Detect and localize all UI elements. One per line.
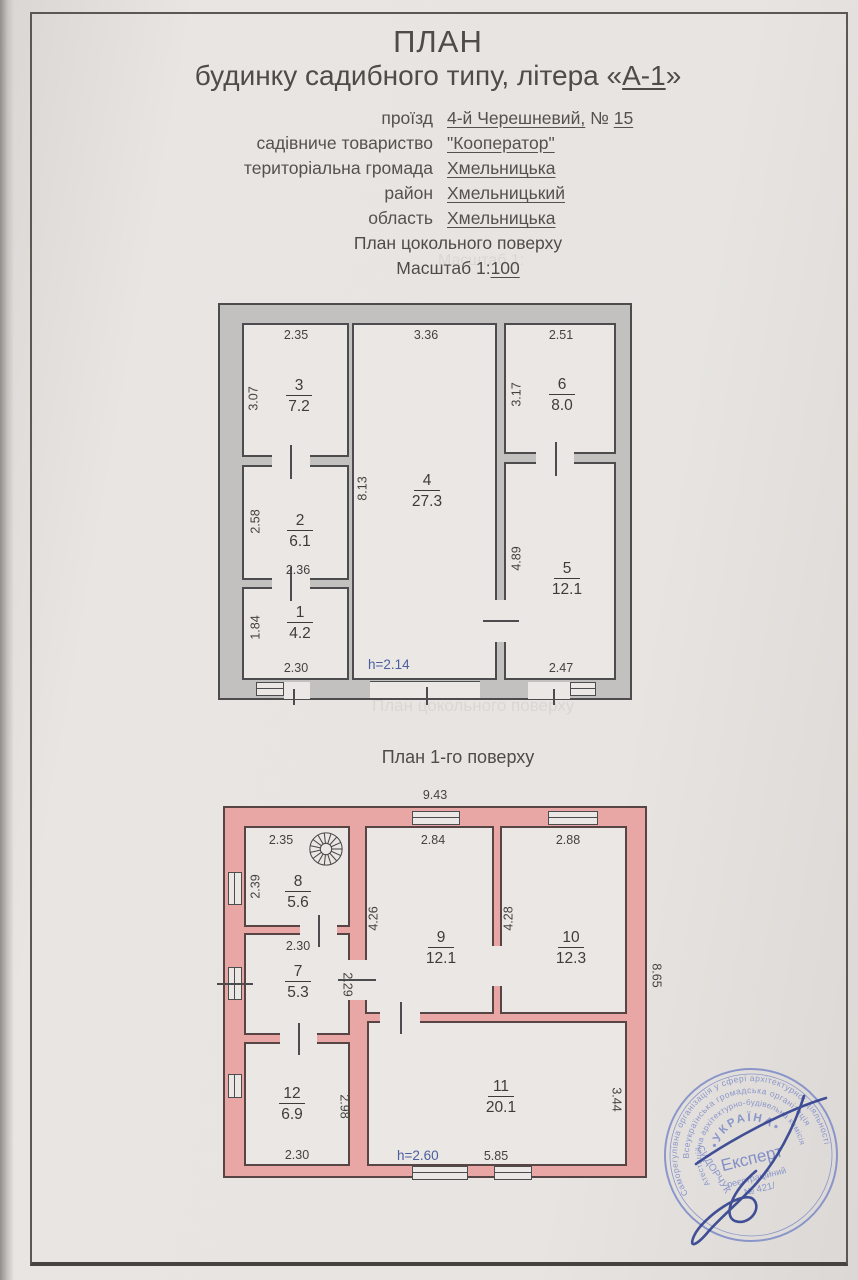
subtitle-suffix: »	[666, 60, 682, 91]
basement-section-title: План цокольного поверху	[298, 233, 618, 254]
room-label-12: 12 6.9	[262, 1085, 322, 1123]
ceiling-height-note: h=2.14	[368, 657, 410, 672]
address-fields: проїзд 4-й Черешневий, № 15 садівниче то…	[38, 106, 838, 231]
field-value: Хмельницька	[447, 208, 556, 229]
room-label-10: 10 12.3	[541, 929, 601, 967]
door-opening	[492, 946, 502, 986]
window	[256, 682, 284, 696]
dimension-tick	[293, 689, 295, 705]
field-label: область	[38, 208, 433, 229]
field-value: Хмельницький	[447, 183, 565, 204]
room-label-6: 6 8.0	[532, 376, 592, 414]
show-through-ghost: Масштаб 1:	[438, 252, 524, 270]
room-label-5: 5 12.1	[537, 560, 597, 598]
window	[228, 1074, 242, 1098]
dim-room4-width: 3.36	[404, 328, 448, 343]
dim-room8-width: 2.35	[259, 833, 303, 848]
dim-overall-width: 9.43	[413, 788, 457, 803]
photographed-document: { "header": { "title_line1": "ПЛАН", "ti…	[0, 0, 858, 1280]
field-label: проїзд	[38, 108, 433, 129]
dim-room2-height: 2.58	[249, 500, 264, 544]
field-row-hromada: територіальна громада Хмельницька	[38, 156, 838, 181]
field-label: район	[38, 183, 433, 204]
dim-room11-height: 3.44	[609, 1078, 624, 1122]
first-floor-section-title: План 1-го поверху	[298, 747, 618, 768]
door-tick	[555, 442, 557, 476]
first-floor-plan: 2.35 2.39 2.30 2.29 2.30 2.98 2.84 4.26 …	[223, 806, 647, 1178]
field-label: садівниче товариство	[38, 133, 433, 154]
window	[412, 811, 460, 825]
field-value: "Кооператор"	[447, 133, 555, 154]
dim-room2-width: 2.36	[276, 563, 320, 578]
dim-room7-width: 2.30	[276, 939, 320, 954]
dim-room6-width: 2.51	[539, 328, 583, 343]
room-label-8: 8 5.6	[268, 873, 328, 911]
door-tick	[217, 983, 253, 985]
room-label-11: 11 20.1	[471, 1078, 531, 1116]
dimension-tick	[426, 687, 428, 705]
porch-opening	[370, 681, 480, 699]
window	[228, 872, 242, 905]
dim-room7-height: 2.29	[340, 963, 355, 1007]
dim-room10-height: 4.28	[502, 897, 517, 941]
dim-room10-width: 2.88	[546, 833, 590, 848]
subtitle-littera: А-1	[622, 60, 666, 91]
dim-room12-height: 2.98	[337, 1085, 352, 1129]
floor1-room-10	[500, 826, 627, 1014]
dim-room9-width: 2.84	[411, 833, 455, 848]
dim-room9-height: 4.26	[367, 897, 382, 941]
window	[548, 811, 598, 825]
room-label-2: 2 6.1	[270, 512, 330, 550]
page-left-edge-shadow	[0, 0, 14, 1280]
field-row-street: проїзд 4-й Черешневий, № 15	[38, 106, 838, 131]
dim-room12-width: 2.30	[275, 1148, 319, 1163]
room-label-3: 3 7.2	[269, 377, 329, 415]
field-value: 4-й Черешневий, № 15	[447, 108, 633, 129]
document-subtitle: будинку садибного типу, літера «А-1»	[29, 60, 847, 92]
expert-stamp: Саморегулівна організація у сфері архіте…	[638, 1040, 858, 1275]
door-tick	[290, 445, 292, 479]
dim-room1-width: 2.30	[274, 661, 318, 676]
room-label-1: 1 4.2	[270, 604, 330, 642]
field-row-society: садівниче товариство "Кооператор"	[38, 131, 838, 156]
window	[412, 1166, 468, 1180]
field-row-oblast: область Хмельницька	[38, 206, 838, 231]
window	[570, 682, 596, 696]
document-title: ПЛАН	[29, 24, 847, 60]
door-opening	[528, 682, 570, 699]
dim-room6-height: 3.17	[510, 373, 525, 417]
door-tick	[483, 620, 519, 622]
dim-room8-height: 2.39	[249, 865, 264, 909]
dim-room4-height: 8.13	[356, 467, 371, 511]
field-value: Хмельницька	[447, 158, 556, 179]
dim-room11-width: 5.85	[474, 1149, 518, 1164]
dim-room3-width: 2.35	[274, 328, 318, 343]
dim-room3-height: 3.07	[247, 377, 262, 421]
field-label: територіальна громада	[38, 158, 433, 179]
dim-overall-height: 8.65	[649, 954, 664, 998]
subtitle-prefix: будинку садибного типу, літера «	[195, 60, 622, 91]
window	[494, 1166, 532, 1180]
dim-room5-width: 2.47	[539, 661, 583, 676]
door-opening	[284, 682, 310, 699]
room-label-9: 9 12.1	[411, 929, 471, 967]
dimension-tick	[553, 689, 555, 705]
room-label-7: 7 5.3	[268, 963, 328, 1001]
field-row-raion: район Хмельницький	[38, 181, 838, 206]
dim-room5-height: 4.89	[510, 537, 525, 581]
floor1-room-9	[365, 826, 494, 1014]
room-label-4: 4 27.3	[397, 472, 457, 510]
door-tick	[298, 1023, 300, 1055]
dim-room1-height: 1.84	[249, 606, 264, 650]
basement-plan: 2.35 3.07 2.58 2.36 1.84 2.30 3.36 8.13 …	[218, 303, 632, 700]
door-tick	[400, 1002, 402, 1034]
ceiling-height-note: h=2.60	[397, 1148, 439, 1163]
spiral-staircase-icon	[307, 830, 345, 868]
